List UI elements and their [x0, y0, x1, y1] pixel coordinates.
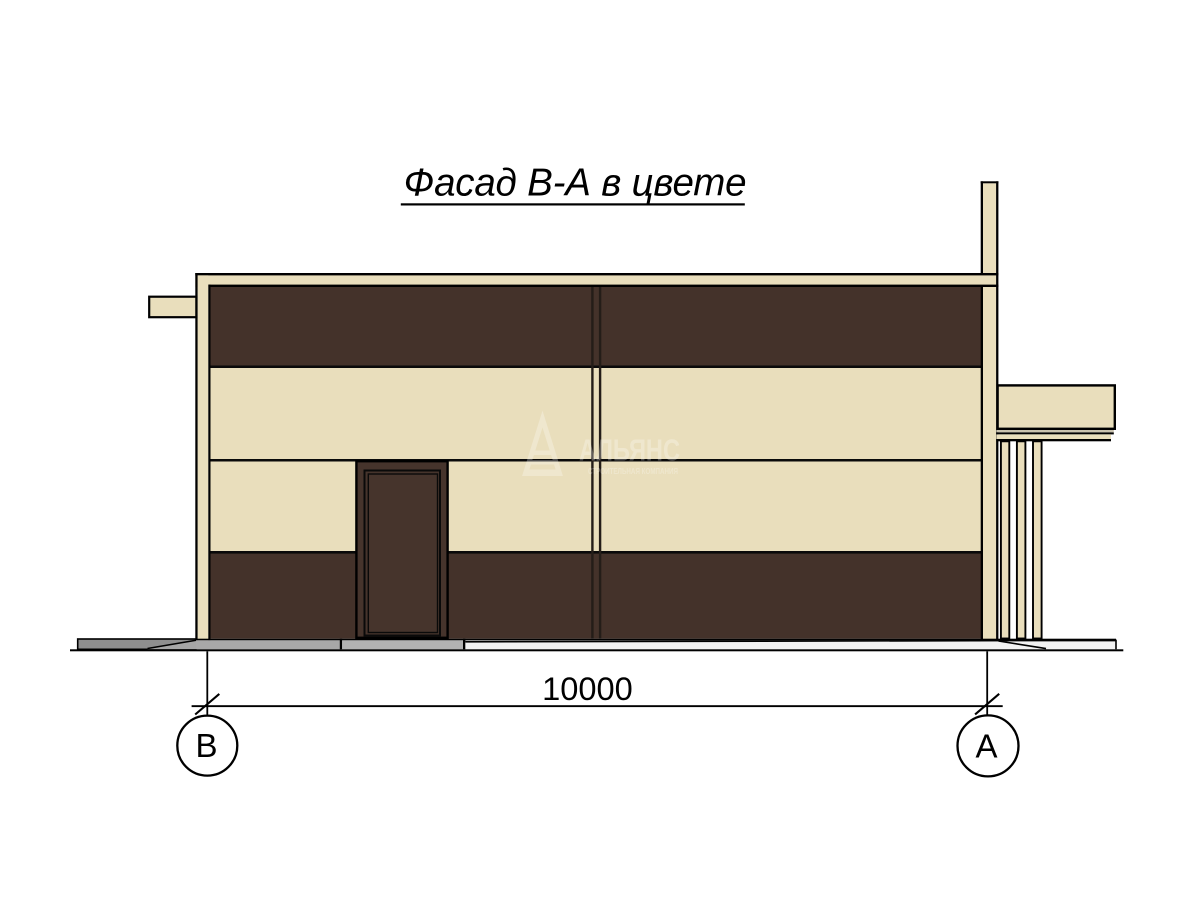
svg-text:В: В: [195, 727, 217, 764]
svg-text:10000: 10000: [542, 670, 633, 707]
svg-text:А: А: [975, 728, 997, 765]
svg-text:АЛЬЯНС: АЛЬЯНС: [579, 433, 680, 468]
svg-text:Фасад В-А в цвете: Фасад В-А в цвете: [404, 162, 747, 205]
svg-text:СТРОИТЕЛЬНАЯ КОМПАНИЯ: СТРОИТЕЛЬНАЯ КОМПАНИЯ: [588, 466, 678, 476]
